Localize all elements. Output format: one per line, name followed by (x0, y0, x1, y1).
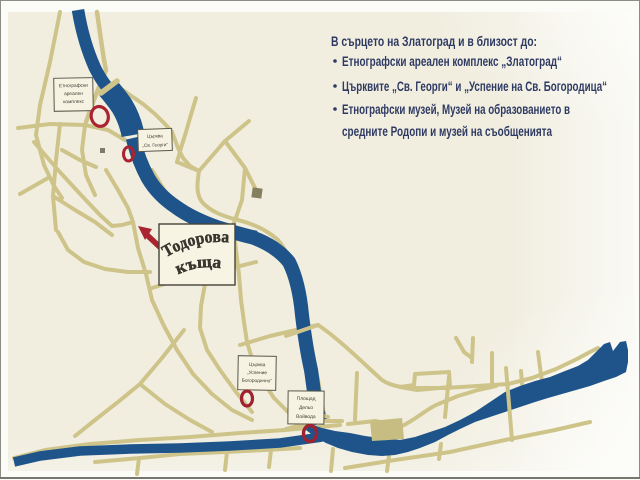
svg-text:Площад: Площад (297, 396, 316, 402)
svg-text:Църква: Църква (147, 133, 163, 139)
svg-text:В сърцето на Златоград и в бли: В сърцето на Златоград и в близост до: (331, 34, 537, 49)
svg-text:Дельо: Дельо (299, 405, 313, 411)
svg-text:средните Родопи и музей на съо: средните Родопи и музей на съобщенията (342, 124, 552, 139)
svg-text:ареален: ареален (64, 92, 83, 97)
svg-text:Етнографски: Етнографски (59, 83, 88, 90)
svg-text:„Св. Георги“: „Св. Георги“ (142, 142, 168, 148)
svg-text:„Успение: „Успение (247, 370, 267, 376)
svg-text:Богородично“: Богородично“ (242, 378, 273, 385)
svg-text:Етнографски музей, Музей на об: Етнографски музей, Музей на образованиет… (342, 102, 570, 117)
svg-text:Етнографски ареален комплекс „: Етнографски ареален комплекс „Златоград“ (342, 54, 562, 69)
svg-text:Църква: Църква (249, 362, 266, 368)
svg-text:комплекс: комплекс (63, 100, 84, 105)
svg-text:Църквите „Св. Георги“ и „Успен: Църквите „Св. Георги“ и „Успение на Св. … (342, 79, 607, 94)
